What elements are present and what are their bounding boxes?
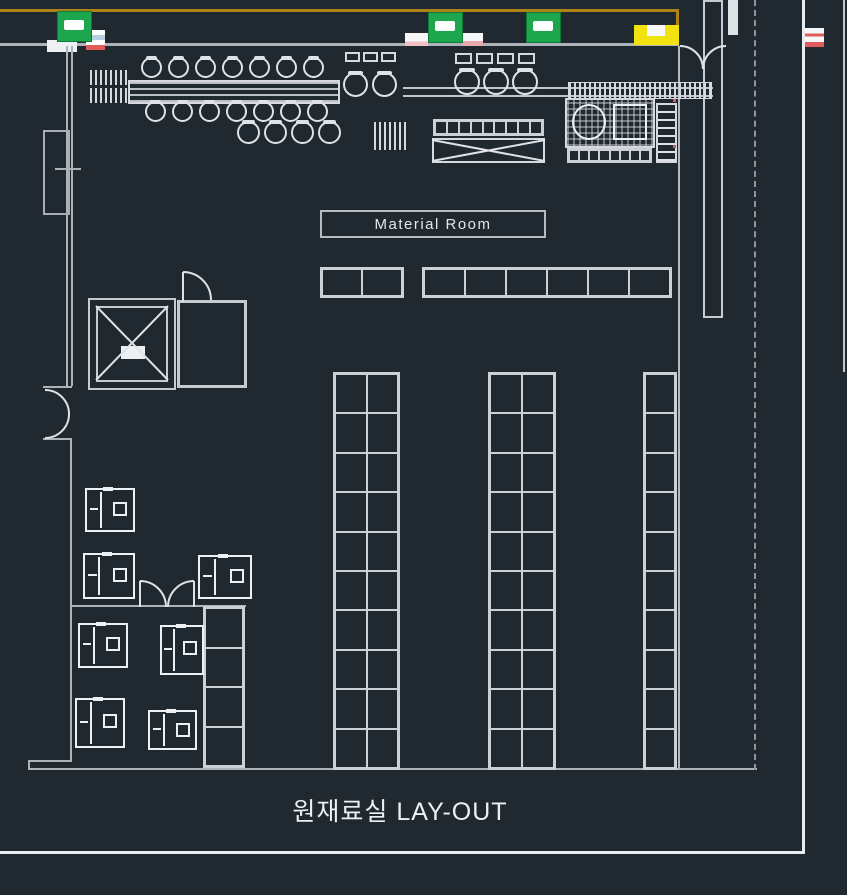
machine-detail (113, 568, 127, 582)
storage-cell (620, 150, 630, 161)
storage-row-group-1 (320, 267, 404, 298)
storage-cell (599, 150, 609, 161)
storage-cell (494, 121, 506, 134)
storage-cell (518, 121, 530, 134)
storage-cell (589, 150, 599, 161)
chair-back (459, 68, 474, 72)
storage-cell (522, 532, 554, 571)
machine-detail (218, 554, 228, 558)
storage-cell (435, 121, 447, 134)
wall-stub (728, 0, 738, 35)
partition-rect (476, 53, 493, 64)
storage-cell (645, 374, 675, 413)
chair-back (517, 68, 532, 72)
side-room (177, 300, 247, 388)
fire-equipment-box-icon (634, 25, 679, 45)
fire-box-notch (647, 25, 665, 36)
side-ladder-column (203, 606, 245, 768)
storage-cell (367, 610, 399, 649)
chair-back (258, 100, 270, 104)
chair-icon (343, 72, 368, 97)
duct-column (703, 0, 723, 318)
storage-cell (522, 453, 554, 492)
chair-back (348, 71, 363, 75)
storage-cell (506, 269, 547, 296)
exit-sign-icon (526, 12, 561, 43)
storage-cell (522, 689, 554, 728)
border-bottom (0, 851, 805, 854)
chair-back (269, 120, 282, 124)
wall-tick (55, 168, 81, 170)
storage-cell (322, 269, 362, 296)
storage-cell (645, 413, 675, 452)
chair-icon (454, 69, 480, 95)
red-marker (673, 99, 676, 102)
storage-row-group-2 (422, 267, 672, 298)
storage-cell (629, 269, 670, 296)
machine-detail (164, 648, 171, 650)
storage-cell (645, 729, 675, 768)
storage-cell (335, 453, 367, 492)
chair-icon (222, 57, 243, 78)
interior-double-door-arc (140, 581, 194, 607)
machine-icon (148, 710, 197, 750)
storage-cell (522, 571, 554, 610)
material-room-label: Material Room (374, 216, 491, 233)
storage-cell (367, 532, 399, 571)
wall-corner (28, 760, 72, 762)
chair-back (285, 100, 297, 104)
equipment-dial (613, 104, 647, 140)
equipment-cell-row (567, 148, 652, 163)
storage-cell (490, 689, 522, 728)
chair-icon (226, 101, 247, 122)
storage-cell (465, 269, 506, 296)
chair-icon (291, 121, 314, 144)
storage-cell (447, 121, 459, 134)
machine-detail (113, 502, 127, 516)
chair-back (312, 100, 324, 104)
counter-ticks (568, 82, 712, 99)
storage-cell (490, 729, 522, 768)
machine-detail (83, 643, 91, 645)
chair-back (242, 120, 255, 124)
machine-detail (93, 627, 95, 664)
table-top-cell-row (433, 119, 544, 136)
wall-left-inner (71, 46, 73, 386)
partition-rect (345, 52, 360, 62)
storage-cell (367, 729, 399, 768)
storage-cell (490, 571, 522, 610)
storage-cell (335, 650, 367, 689)
machine-detail (103, 714, 117, 728)
storage-cell (367, 571, 399, 610)
elevator-center-patch (121, 346, 145, 359)
machine-detail (106, 637, 120, 651)
machine-icon (160, 625, 204, 675)
chair-back (200, 56, 212, 60)
storage-cell (490, 492, 522, 531)
machine-detail (96, 622, 106, 626)
machine-detail (90, 702, 92, 744)
storage-cell (205, 687, 243, 727)
machine-detail (176, 723, 190, 737)
machine-detail (100, 492, 102, 528)
chair-icon (249, 57, 270, 78)
storage-cell (335, 610, 367, 649)
storage-cell (471, 121, 483, 134)
vertical-rack-3 (643, 372, 677, 770)
storage-cell (490, 453, 522, 492)
exit-sign-icon (428, 12, 463, 43)
chair-icon (276, 57, 297, 78)
exit-sign-glyph (435, 21, 455, 31)
storage-cell (522, 374, 554, 413)
chair-back (254, 56, 266, 60)
machine-detail (230, 569, 244, 583)
storage-cell (569, 150, 579, 161)
chair-back (177, 100, 189, 104)
storage-cell (645, 532, 675, 571)
machine-detail (88, 574, 97, 576)
equipment-block (565, 98, 655, 148)
machine-icon (78, 623, 128, 668)
chair-icon (195, 57, 216, 78)
storage-cell (367, 374, 399, 413)
storage-cell (645, 453, 675, 492)
partition-rect (497, 53, 514, 64)
machine-icon (75, 698, 125, 748)
storage-cell (588, 269, 629, 296)
machine-detail (183, 641, 197, 655)
border-far-right (843, 0, 845, 372)
storage-cell (335, 374, 367, 413)
storage-cell (335, 413, 367, 452)
vertical-rack-1 (333, 372, 400, 770)
machine-detail (93, 697, 103, 701)
storage-cell (579, 150, 589, 161)
storage-cell (547, 269, 588, 296)
border-right (802, 0, 805, 853)
storage-cell (335, 689, 367, 728)
machine-detail (153, 728, 161, 730)
exit-sign-icon (57, 11, 92, 42)
equipment-ladder (656, 103, 677, 163)
partition-rect (363, 52, 378, 62)
chair-icon (141, 57, 162, 78)
storage-cell (630, 150, 640, 161)
machine-detail (102, 552, 112, 556)
wall-left-bump (43, 130, 70, 215)
storage-cell (367, 689, 399, 728)
storage-cell (522, 413, 554, 452)
door-stub (43, 386, 72, 388)
storage-cell (645, 610, 675, 649)
door-stub (43, 438, 72, 440)
side-room-door-arc (183, 272, 211, 302)
partition-rect (518, 53, 535, 64)
storage-cell (522, 492, 554, 531)
storage-cell (490, 532, 522, 571)
chair-icon (307, 101, 328, 122)
machine-icon (198, 555, 252, 599)
machine-detail (98, 557, 100, 595)
chair-icon (264, 121, 287, 144)
grid-line-dashed (754, 0, 756, 770)
storage-cell (645, 689, 675, 728)
machine-icon (85, 488, 135, 532)
chair-icon (237, 121, 260, 144)
storage-cell (640, 150, 650, 161)
wall-left-outer (66, 46, 68, 386)
storage-cell (362, 269, 402, 296)
storage-cell (522, 729, 554, 768)
storage-cell (335, 532, 367, 571)
chair-back (173, 56, 185, 60)
storage-cell (506, 121, 518, 134)
chair-icon (318, 121, 341, 144)
drawing-title: 원재료실 LAY-OUT (250, 792, 550, 828)
left-double-door-arc (45, 390, 69, 438)
storage-cell (367, 650, 399, 689)
x-table (432, 138, 545, 163)
chair-back (377, 71, 392, 75)
chair-back (308, 56, 320, 60)
door-leaf-white (462, 33, 483, 46)
chair-icon (512, 69, 538, 95)
partition-rect (455, 53, 472, 64)
storage-cell (459, 121, 471, 134)
machine-detail (90, 508, 98, 510)
storage-cell (424, 269, 465, 296)
machine-detail (214, 559, 216, 595)
chair-back (281, 56, 293, 60)
floor-plan-canvas: Material Room 원재료실 LAY-OUT (0, 0, 847, 895)
wall-left-lower (70, 440, 72, 762)
door-leaf-white (405, 33, 428, 46)
storage-cell (645, 571, 675, 610)
machine-detail (203, 575, 212, 577)
chair-icon (372, 72, 397, 97)
chair-icon (168, 57, 189, 78)
chair-back (150, 100, 162, 104)
equipment-dial (572, 104, 606, 140)
chair-back (296, 120, 309, 124)
machine-detail (103, 487, 113, 491)
chair-icon (145, 101, 166, 122)
chair-icon (253, 101, 274, 122)
storage-cell (530, 121, 542, 134)
storage-cell (205, 648, 243, 688)
shelf-hatch (90, 70, 127, 85)
shelf-hatch (90, 88, 127, 103)
chair-back (488, 68, 503, 72)
partition-rect (381, 52, 396, 62)
storage-cell (335, 492, 367, 531)
storage-cell (367, 413, 399, 452)
chair-back (146, 56, 158, 60)
machine-detail (163, 714, 165, 746)
storage-cell (367, 453, 399, 492)
shelf-hatch (374, 122, 406, 150)
chair-icon (199, 101, 220, 122)
chair-back (231, 100, 243, 104)
storage-cell (645, 492, 675, 531)
storage-cell (205, 727, 243, 767)
storage-cell (610, 150, 620, 161)
storage-cell (522, 650, 554, 689)
red-marker (673, 145, 676, 148)
exit-sign-glyph (533, 21, 553, 31)
material-room-label-box: Material Room (320, 210, 546, 238)
striped-marker (805, 28, 824, 47)
machine-detail (176, 624, 186, 628)
storage-cell (335, 571, 367, 610)
storage-cell (335, 729, 367, 768)
storage-cell (490, 374, 522, 413)
vertical-rack-2 (488, 372, 556, 770)
wall-right-interior (678, 46, 680, 770)
chair-back (323, 120, 336, 124)
chair-icon (483, 69, 509, 95)
machine-detail (80, 721, 88, 723)
gold-border-top (0, 9, 679, 12)
elevator-shaft-inner (96, 306, 168, 382)
chair-back (204, 100, 216, 104)
storage-cell (490, 610, 522, 649)
machine-detail (173, 629, 175, 671)
storage-cell (205, 608, 243, 648)
storage-cell (490, 650, 522, 689)
chair-icon (172, 101, 193, 122)
storage-cell (490, 413, 522, 452)
machine-icon (83, 553, 135, 599)
storage-cell (367, 492, 399, 531)
machine-detail (166, 709, 176, 713)
chair-icon (280, 101, 301, 122)
storage-cell (522, 610, 554, 649)
exit-sign-glyph (64, 20, 84, 30)
storage-cell (645, 650, 675, 689)
storage-cell (483, 121, 495, 134)
chair-back (227, 56, 239, 60)
chair-icon (303, 57, 324, 78)
